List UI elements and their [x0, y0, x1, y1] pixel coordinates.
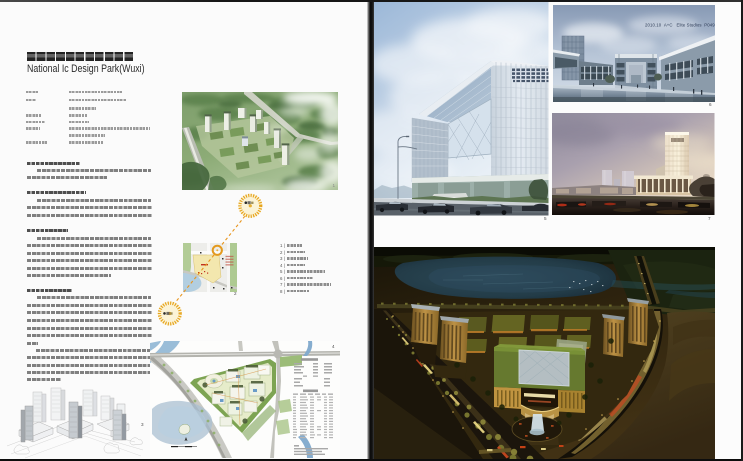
svg-text:2010.10 A+C Elite Studios: 2010.10 A+C Elite Studios P049 [645, 22, 715, 27]
